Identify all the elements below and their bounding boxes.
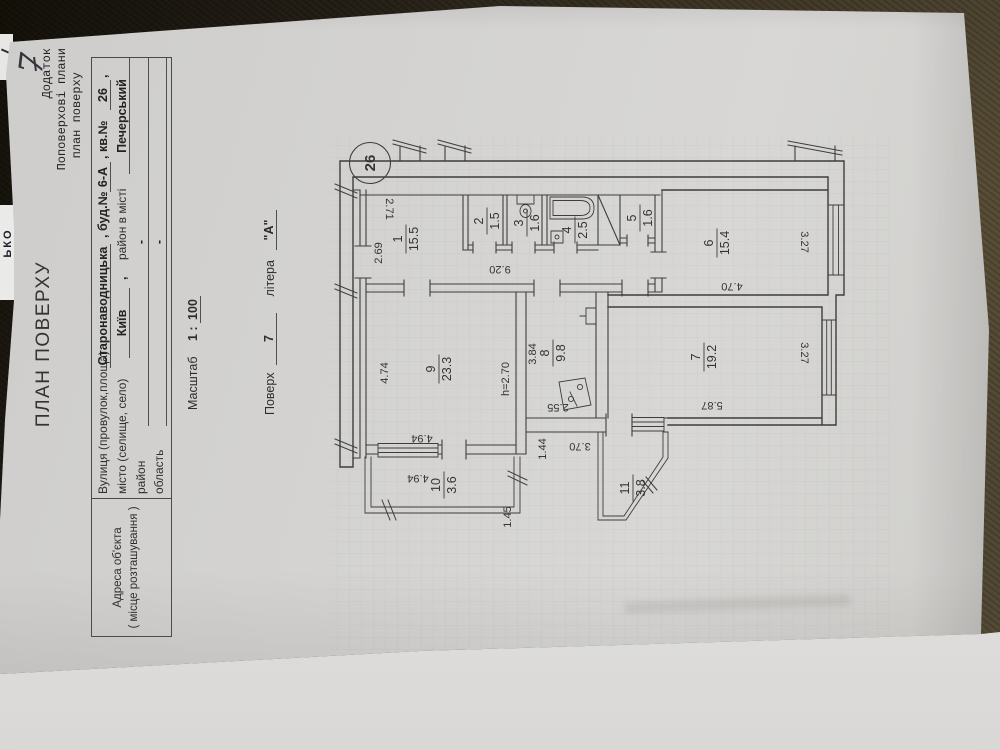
address-row-oblast: область - [152,58,170,636]
floor-number: 7 [262,313,277,365]
photo-of-floor-plan-document: { "doc": { "page_number": "7", "annex": … [0,0,1000,750]
scale-note: Масштаб 1 : 100 [186,296,200,410]
address-table: Адреса об'єкта ( місце розташування ) Ву… [91,57,172,637]
page-title: ПЛАН ПОВЕРХУ [33,256,55,432]
annex-line2: Поповерхові плани [55,48,70,290]
address-row-city: місто (селище, село) Київ , район в міст… [115,58,133,636]
floor-note: Поверх 7 літера "А" [262,210,277,415]
building-letter: "А" [262,210,277,250]
document-content: 7 Додаток Поповерхові плани план поверху… [0,0,1000,750]
graph-paper-bleedthrough [330,135,890,650]
pen-mark [1,48,9,53]
floor-plan-area: 26 1 15.5 2 1.5 3 1.6 4 2.5 5 1.6 6 15.4… [330,135,890,650]
annex-line1: Додаток [40,48,55,290]
underlying-sheet-text-fragment: ЬКО [2,203,14,283]
address-row-street: Вулиця (провулок,площа) Старонаводницька… [96,58,114,636]
address-row-raion: район - [134,58,152,636]
document-sheet: 7 Додаток Поповерхові плани план поверху… [0,0,1000,750]
annex-line3: план поверху [70,72,85,290]
annex-note: Додаток Поповерхові плани план поверху [40,48,85,290]
